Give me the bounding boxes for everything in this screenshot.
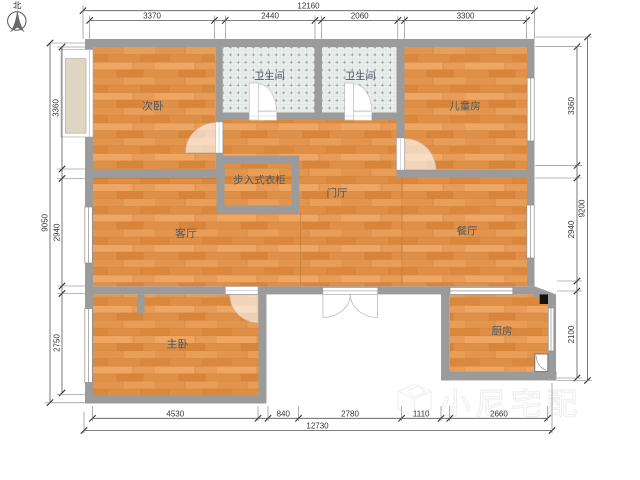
svg-text:2750: 2750 bbox=[53, 334, 62, 352]
svg-text:3370: 3370 bbox=[143, 11, 161, 20]
svg-text:3360: 3360 bbox=[567, 97, 576, 115]
svg-text:2940: 2940 bbox=[53, 223, 62, 241]
svg-text:9050: 9050 bbox=[41, 213, 50, 231]
svg-text:2060: 2060 bbox=[351, 11, 369, 20]
svg-text:4530: 4530 bbox=[166, 409, 184, 418]
svg-text:9200: 9200 bbox=[578, 199, 587, 217]
svg-text:2100: 2100 bbox=[567, 325, 576, 343]
svg-text:2660: 2660 bbox=[490, 409, 508, 418]
svg-text:1110: 1110 bbox=[413, 409, 430, 418]
svg-text:12730: 12730 bbox=[306, 422, 329, 431]
svg-text:12160: 12160 bbox=[297, 2, 320, 11]
svg-text:2780: 2780 bbox=[341, 409, 359, 418]
svg-text:2440: 2440 bbox=[261, 11, 279, 20]
svg-text:2940: 2940 bbox=[567, 220, 576, 238]
svg-text:3360: 3360 bbox=[52, 99, 61, 117]
svg-text:3300: 3300 bbox=[457, 11, 475, 20]
svg-text:840: 840 bbox=[277, 409, 291, 418]
